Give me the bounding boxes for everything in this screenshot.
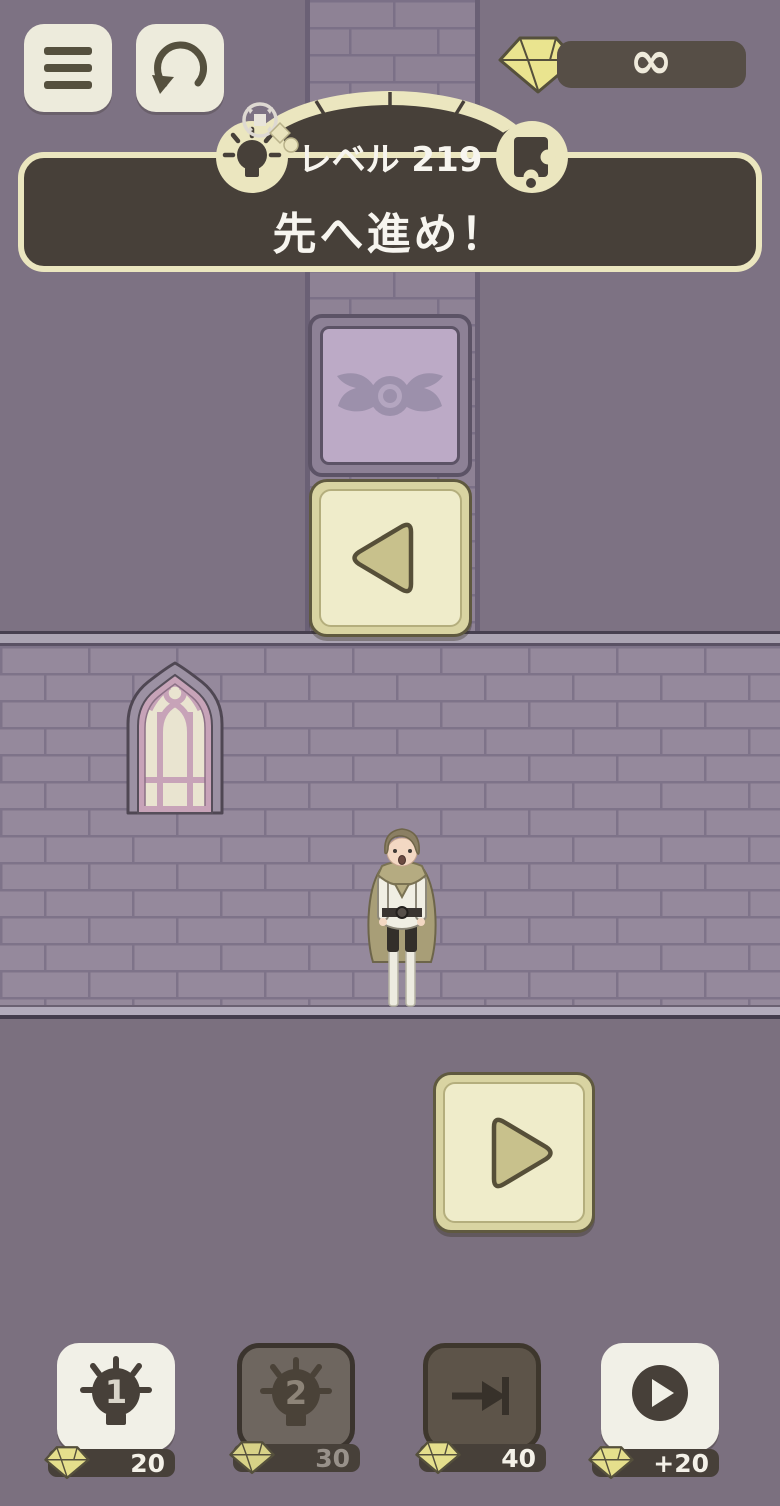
diamond-gem-icon bbox=[586, 1439, 636, 1485]
diamond-gem-icon bbox=[227, 1434, 277, 1480]
skip-cost: 40 bbox=[501, 1444, 536, 1473]
restart-button[interactable] bbox=[136, 24, 224, 112]
bulb-1-number: 1 bbox=[105, 1373, 127, 1411]
skip-level-button[interactable]: 40 bbox=[423, 1343, 541, 1451]
start-run-tile-face bbox=[443, 1082, 585, 1223]
diamond-gem-icon bbox=[42, 1439, 92, 1485]
hamburger-icon bbox=[24, 24, 112, 112]
bulb-2-icon: 2 bbox=[256, 1356, 336, 1436]
level-label: レベル 219 bbox=[0, 132, 780, 181]
left-triangle-icon bbox=[341, 508, 441, 608]
play-video-icon bbox=[620, 1355, 700, 1435]
gem-counter[interactable]: ∞ bbox=[557, 41, 746, 88]
menu-button[interactable] bbox=[24, 24, 112, 112]
hint-1-cost-bar: 20 bbox=[48, 1449, 175, 1477]
gem-count-value: ∞ bbox=[557, 41, 746, 81]
move-left-tile-face bbox=[319, 489, 462, 627]
hint-2-cost-bar: 30 bbox=[233, 1444, 360, 1472]
level-message: 先へ進め！ bbox=[0, 198, 780, 262]
start-run-tile[interactable] bbox=[433, 1072, 595, 1233]
earn-gems-button[interactable]: +20 bbox=[601, 1343, 719, 1451]
diamond-gem-icon bbox=[413, 1434, 463, 1480]
goal-emblem-tile bbox=[308, 314, 472, 477]
game-screen: レベル 219 先へ進め！ bbox=[0, 0, 780, 1506]
hint-1-button[interactable]: 1 20 bbox=[57, 1343, 175, 1451]
hint-2-cost: 30 bbox=[315, 1444, 350, 1473]
skip-to-end-icon bbox=[442, 1356, 522, 1436]
hint-1-cost: 20 bbox=[130, 1449, 165, 1478]
gothic-window-icon bbox=[122, 660, 228, 816]
bulb-1-icon: 1 bbox=[76, 1355, 156, 1435]
puzzle-piece-icon bbox=[496, 121, 568, 193]
hint-2-button[interactable]: 2 30 bbox=[237, 1343, 355, 1451]
puzzle-badge bbox=[496, 121, 568, 193]
earn-gems-bar: +20 bbox=[592, 1449, 719, 1477]
goal-emblem-tile-face bbox=[320, 326, 460, 465]
earn-gems-amount: +20 bbox=[653, 1449, 709, 1478]
sparkle-compass-icon bbox=[232, 96, 304, 160]
skip-cost-bar: 40 bbox=[419, 1444, 546, 1472]
bulb-2-number: 2 bbox=[285, 1374, 307, 1412]
restart-arrow-icon bbox=[136, 24, 224, 112]
move-left-tile[interactable] bbox=[309, 479, 472, 637]
hero-character bbox=[352, 822, 452, 1010]
right-triangle-icon bbox=[464, 1103, 564, 1203]
winged-circle-emblem-icon bbox=[329, 358, 451, 434]
